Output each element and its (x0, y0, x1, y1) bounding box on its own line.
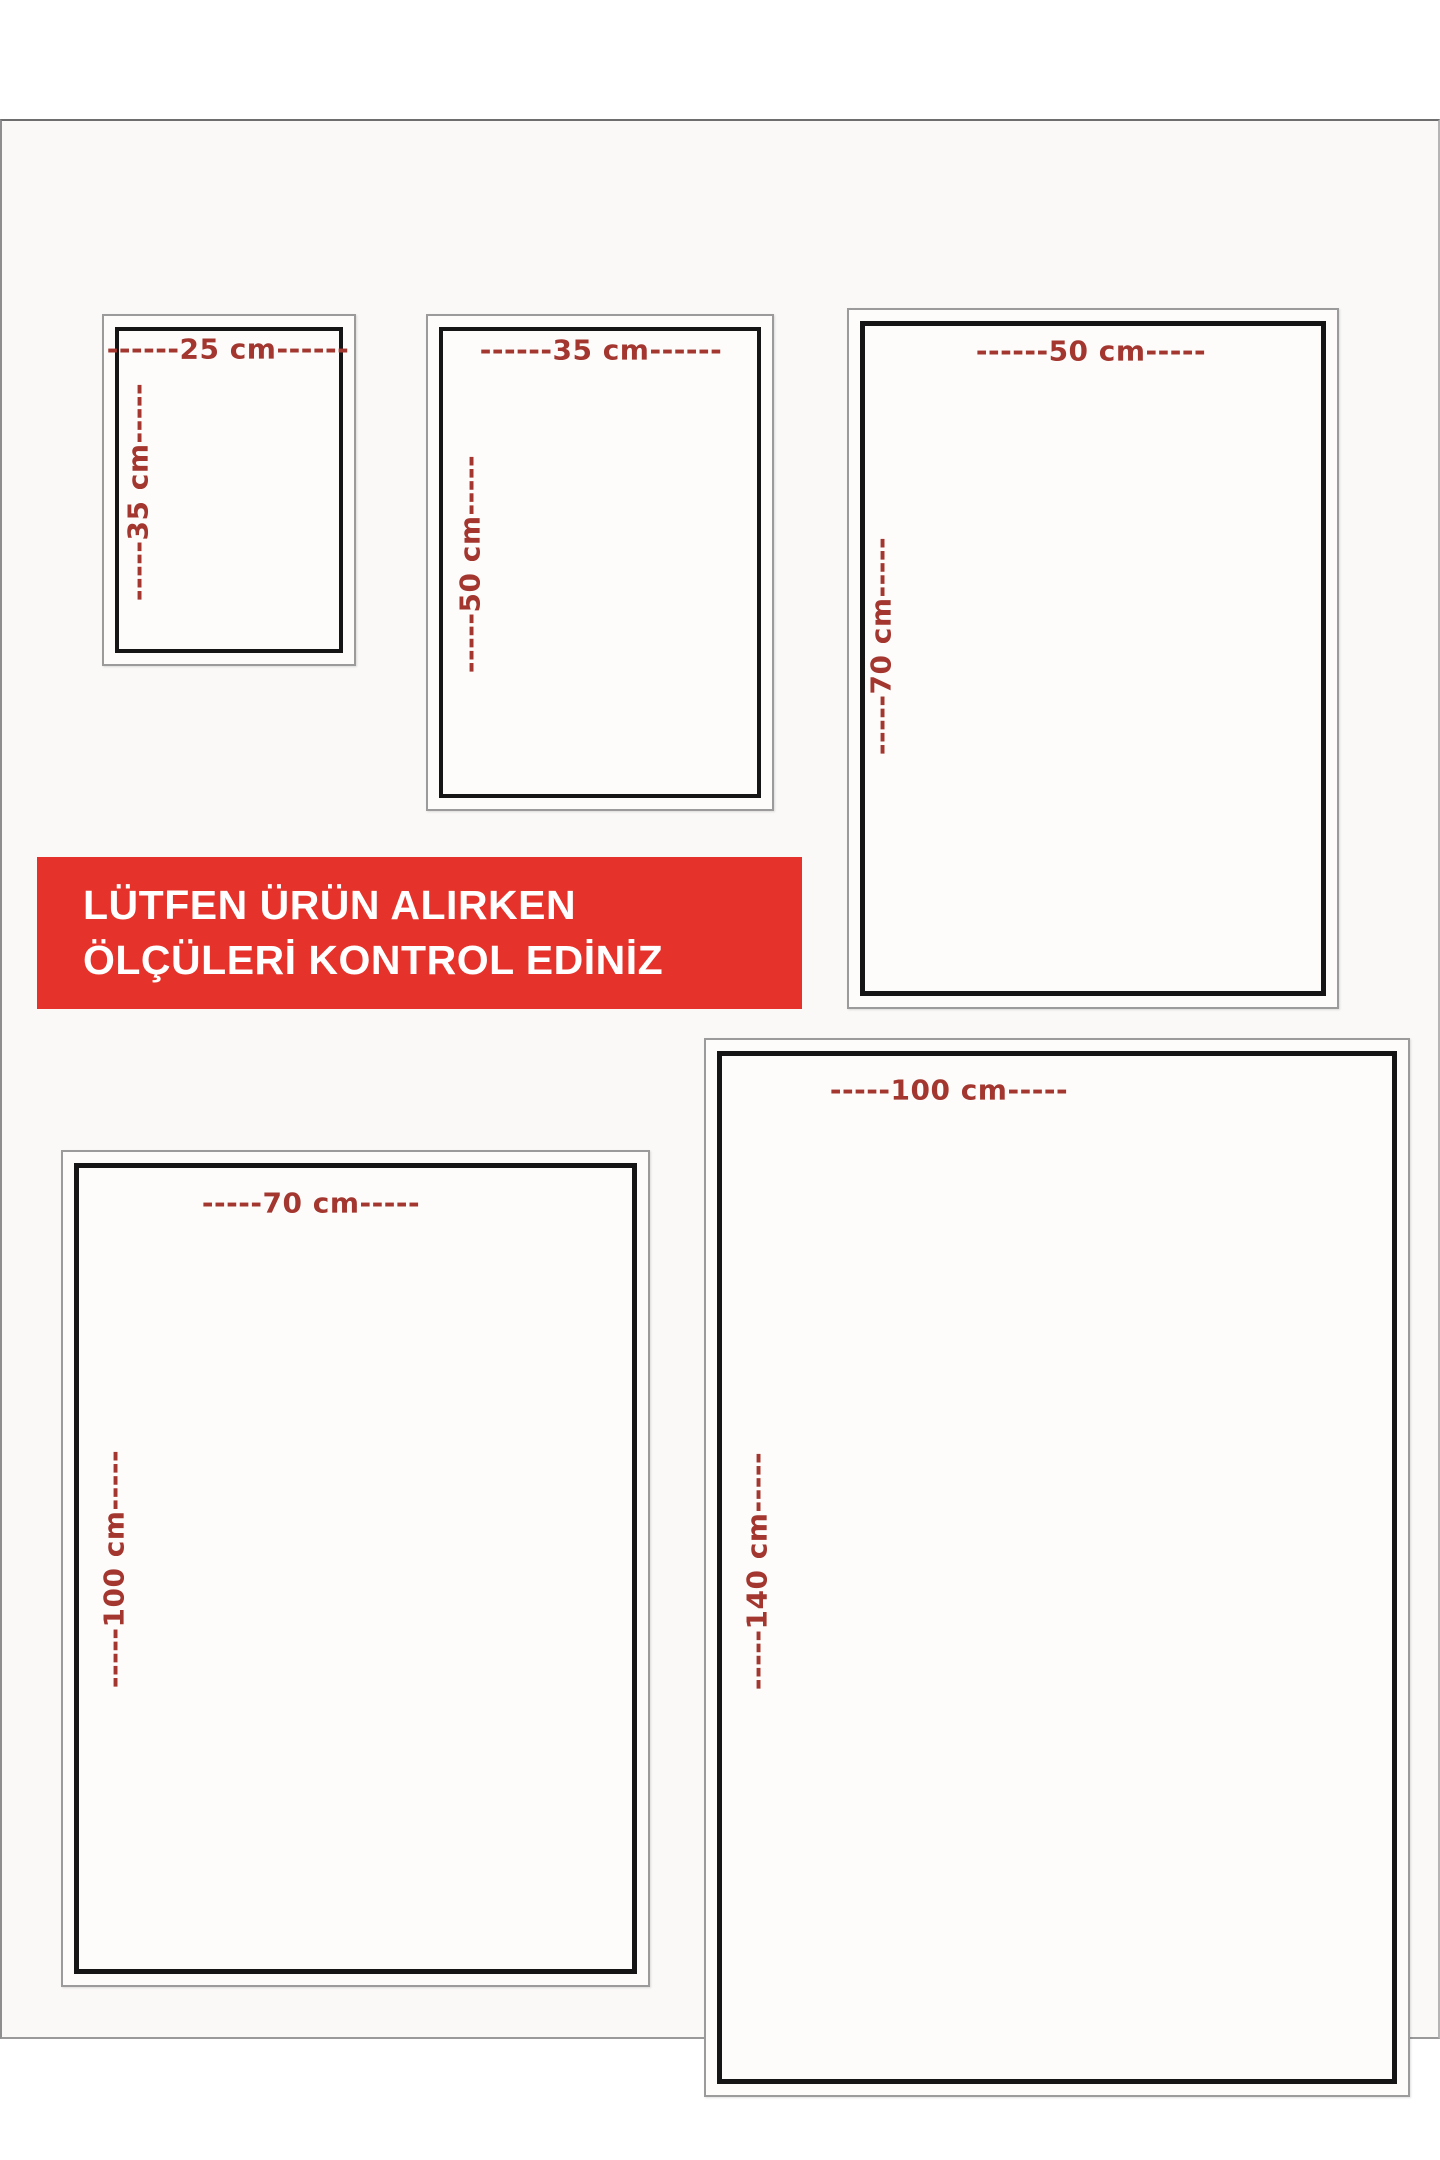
height-dimension-label-35cm: -----35 cm----- (122, 383, 155, 601)
size-guide-panel: ------25 cm------ -----35 cm----- ------… (0, 119, 1440, 2039)
width-dimension-label-25cm: ------25 cm------ (107, 333, 349, 366)
width-dimension-label-50cm: ------50 cm----- (976, 335, 1206, 368)
width-dimension-label-35cm: ------35 cm------ (480, 334, 722, 367)
width-dimension-label-70cm: -----70 cm----- (202, 1187, 420, 1220)
measurement-warning-banner: LÜTFEN ÜRÜN ALIRKEN ÖLÇÜLERİ KONTROL EDİ… (37, 857, 802, 1009)
width-dimension-label-100cm: -----100 cm----- (830, 1074, 1068, 1107)
size-frame-50x70-border (860, 321, 1326, 996)
height-dimension-label-100cm: -----100 cm----- (98, 1450, 131, 1688)
size-frame-35x50: ------35 cm------ -----50 cm----- (426, 314, 774, 811)
warning-text-line1: LÜTFEN ÜRÜN ALIRKEN (83, 885, 802, 926)
warning-text-line2: ÖLÇÜLERİ KONTROL EDİNİZ (83, 940, 802, 981)
size-frame-35x50-border (439, 327, 761, 798)
height-dimension-label-50cm: -----50 cm----- (454, 455, 487, 673)
height-dimension-label-140cm: -----140 cm----- (741, 1452, 774, 1690)
size-frame-100x140: -----100 cm----- -----140 cm----- (704, 1038, 1410, 2097)
size-frame-50x70: ------50 cm----- -----70 cm----- (847, 308, 1339, 1009)
size-frame-70x100-border (74, 1163, 637, 1974)
size-frame-100x140-border (717, 1051, 1397, 2084)
size-frame-70x100: -----70 cm----- -----100 cm----- (61, 1150, 650, 1987)
size-frame-25x35: ------25 cm------ -----35 cm----- (102, 314, 356, 666)
height-dimension-label-70cm: -----70 cm----- (865, 537, 898, 755)
